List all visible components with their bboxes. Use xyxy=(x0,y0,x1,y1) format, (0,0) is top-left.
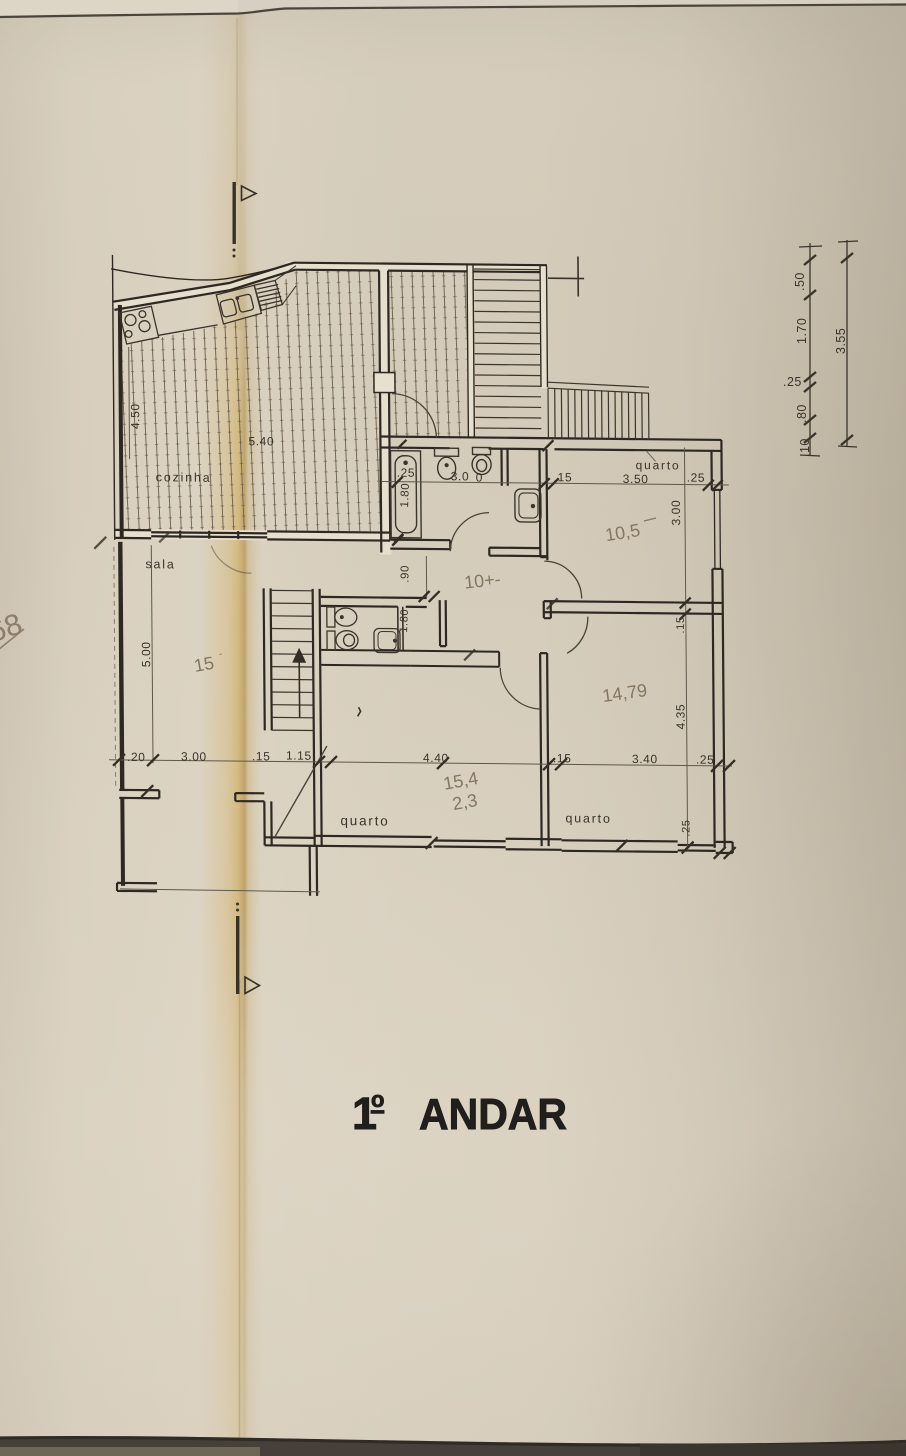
svg-text:.25: .25 xyxy=(397,466,416,480)
svg-text:0: 0 xyxy=(476,470,483,484)
svg-text:.25: .25 xyxy=(680,819,692,836)
svg-text:3.50: 3.50 xyxy=(623,472,649,486)
svg-text:5.40: 5.40 xyxy=(248,434,274,448)
svg-text:quarto: quarto xyxy=(565,811,611,825)
svg-text:15: 15 xyxy=(192,653,215,676)
svg-text:3.0: 3.0 xyxy=(451,469,470,483)
svg-text:5.00: 5.00 xyxy=(139,641,153,667)
svg-text:3.55: 3.55 xyxy=(834,328,848,354)
svg-text:sala: sala xyxy=(145,557,175,571)
svg-text:.15: .15 xyxy=(252,749,271,763)
svg-text:.15: .15 xyxy=(675,616,687,633)
svg-text:4.50: 4.50 xyxy=(128,403,142,429)
svg-text:.20: .20 xyxy=(127,750,146,764)
svg-text:4.40: 4.40 xyxy=(423,751,449,765)
svg-text:cozinha: cozinha xyxy=(156,470,212,485)
svg-text:1.80: 1.80 xyxy=(398,608,411,633)
svg-text:3.00: 3.00 xyxy=(181,750,207,764)
svg-text:1.70: 1.70 xyxy=(795,318,809,344)
svg-text:.90: .90 xyxy=(399,565,411,583)
svg-text:1.15: 1.15 xyxy=(286,749,312,763)
svg-text:2,3: 2,3 xyxy=(451,790,479,814)
svg-text:3.40: 3.40 xyxy=(632,752,658,766)
svg-text:ANDAR: ANDAR xyxy=(419,1090,567,1139)
svg-text:.25: .25 xyxy=(783,375,802,389)
svg-text:10+-: 10+- xyxy=(463,569,501,593)
svg-text:quarto: quarto xyxy=(636,458,681,472)
svg-text:1.80: 1.80 xyxy=(399,482,412,507)
svg-text:.15: .15 xyxy=(554,470,573,484)
svg-text:4.35: 4.35 xyxy=(674,704,688,730)
svg-text:.25: .25 xyxy=(696,753,715,767)
svg-text:.50: .50 xyxy=(793,272,807,291)
svg-text:.15: .15 xyxy=(553,751,572,765)
svg-text:quarto: quarto xyxy=(340,813,389,828)
svg-text:3.00: 3.00 xyxy=(669,500,683,526)
svg-text:.80: .80 xyxy=(795,404,809,423)
svg-text:.25: .25 xyxy=(687,471,706,485)
svg-text:o: o xyxy=(371,1087,384,1112)
svg-text:.10: .10 xyxy=(798,438,812,457)
